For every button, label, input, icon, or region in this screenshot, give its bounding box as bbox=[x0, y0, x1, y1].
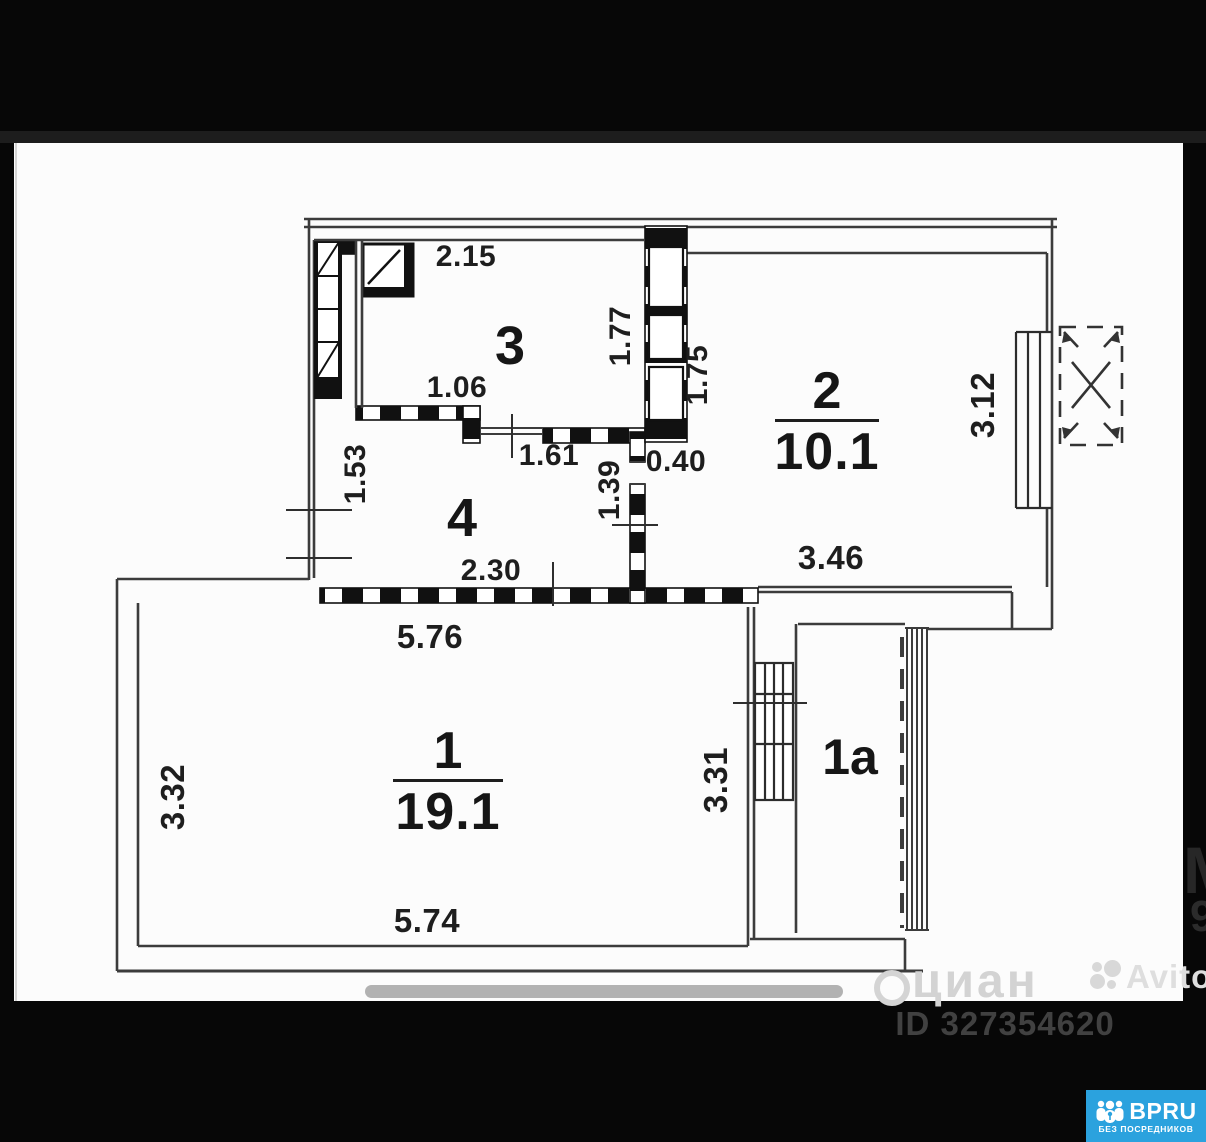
dim-1-53: 1.53 bbox=[339, 444, 373, 504]
room-label-2: 2 10.1 bbox=[775, 364, 879, 480]
room-2-divider bbox=[775, 419, 879, 422]
room-1-area: 19.1 bbox=[395, 784, 500, 840]
balcony-glazing bbox=[902, 628, 929, 930]
room-1-divider bbox=[393, 779, 503, 782]
vent-shaft-boxes bbox=[649, 247, 683, 420]
bpru-badge[interactable]: BPRU БЕЗ ПОСРЕДНИКОВ bbox=[1086, 1090, 1206, 1142]
room-label-3: 3 bbox=[495, 315, 525, 377]
room-label-1a: 1a bbox=[822, 728, 878, 786]
bpru-badge-row: BPRU bbox=[1095, 1099, 1196, 1123]
dim-5-76: 5.76 bbox=[397, 618, 463, 656]
dim-3-31: 3.31 bbox=[697, 747, 735, 813]
dim-1-61: 1.61 bbox=[519, 439, 579, 473]
dim-1-77: 1.77 bbox=[604, 306, 638, 366]
room-label-4: 4 bbox=[447, 487, 477, 549]
dim-3-46: 3.46 bbox=[798, 539, 864, 577]
balcony-window bbox=[755, 663, 793, 800]
bpru-people-key-icon bbox=[1095, 1099, 1125, 1123]
dim-1-75: 1.75 bbox=[681, 345, 715, 405]
dim-2-30: 2.30 bbox=[461, 554, 521, 588]
bpru-brand-name: BPRU bbox=[1129, 1099, 1196, 1123]
cian-logo-icon bbox=[874, 970, 910, 1006]
watermark-fragment: 9 bbox=[1190, 892, 1206, 942]
dim-1-06: 1.06 bbox=[427, 371, 487, 405]
scrollbar-thumb[interactable] bbox=[365, 985, 843, 998]
room2-window bbox=[1016, 332, 1052, 508]
scan-edge-line bbox=[15, 143, 17, 1001]
left-vent-column bbox=[315, 240, 341, 398]
room-2-number: 2 bbox=[813, 364, 842, 418]
ac-unit-symbol bbox=[1060, 327, 1122, 445]
cian-watermark: циан bbox=[912, 960, 1039, 1004]
avito-logo-dot-icon bbox=[1104, 960, 1121, 977]
avito-logo-dot-icon bbox=[1090, 974, 1105, 989]
top-letterbox-strip bbox=[0, 131, 1206, 143]
room-2-area: 10.1 bbox=[774, 424, 879, 480]
screenshot-root: 2.15 1.06 1.77 1.75 1.53 1.61 0.40 1.39 … bbox=[0, 0, 1206, 1142]
dim-0-40: 0.40 bbox=[646, 445, 706, 479]
dim-1-39: 1.39 bbox=[593, 460, 627, 520]
listing-id: ID 327354620 bbox=[895, 1005, 1114, 1043]
bpru-tagline: БЕЗ ПОСРЕДНИКОВ bbox=[1099, 1124, 1194, 1134]
avito-watermark: Avito bbox=[1126, 958, 1206, 996]
dim-3-32: 3.32 bbox=[154, 764, 192, 830]
dim-5-74: 5.74 bbox=[394, 902, 460, 940]
top-letterbox-bar bbox=[0, 0, 1206, 143]
left-letterbox-bar bbox=[0, 143, 14, 1002]
dim-2-15: 2.15 bbox=[436, 240, 496, 274]
avito-logo-dot-icon bbox=[1107, 980, 1116, 989]
dim-3-12: 3.12 bbox=[964, 372, 1002, 438]
room-label-1: 1 19.1 bbox=[393, 724, 503, 840]
room3-fixture bbox=[363, 244, 413, 296]
avito-logo-dot-icon bbox=[1092, 962, 1102, 972]
room-1-number: 1 bbox=[434, 724, 463, 778]
